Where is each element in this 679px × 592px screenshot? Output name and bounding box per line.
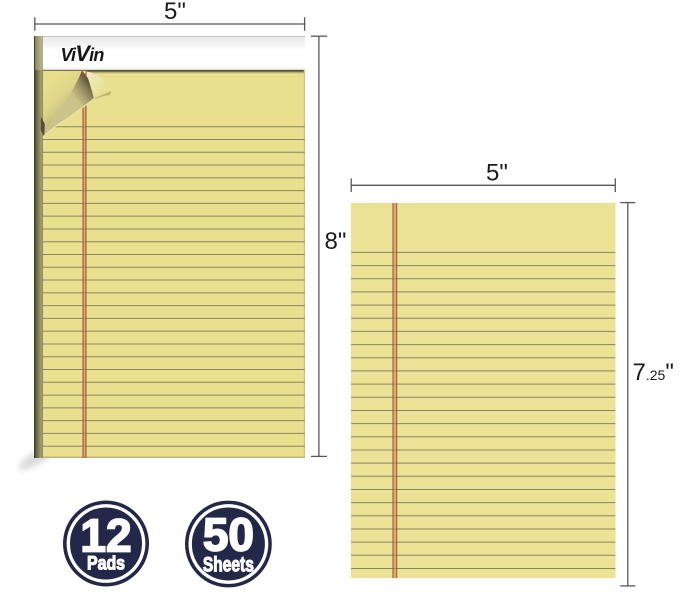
svg-text:8": 8" [325, 228, 347, 255]
svg-text:5": 5" [486, 160, 508, 187]
svg-text:5": 5" [164, 0, 186, 25]
svg-text:Sheets: Sheets [203, 554, 254, 577]
svg-text:Pads: Pads [87, 554, 125, 575]
svg-text:ViVin: ViVin [61, 41, 105, 66]
